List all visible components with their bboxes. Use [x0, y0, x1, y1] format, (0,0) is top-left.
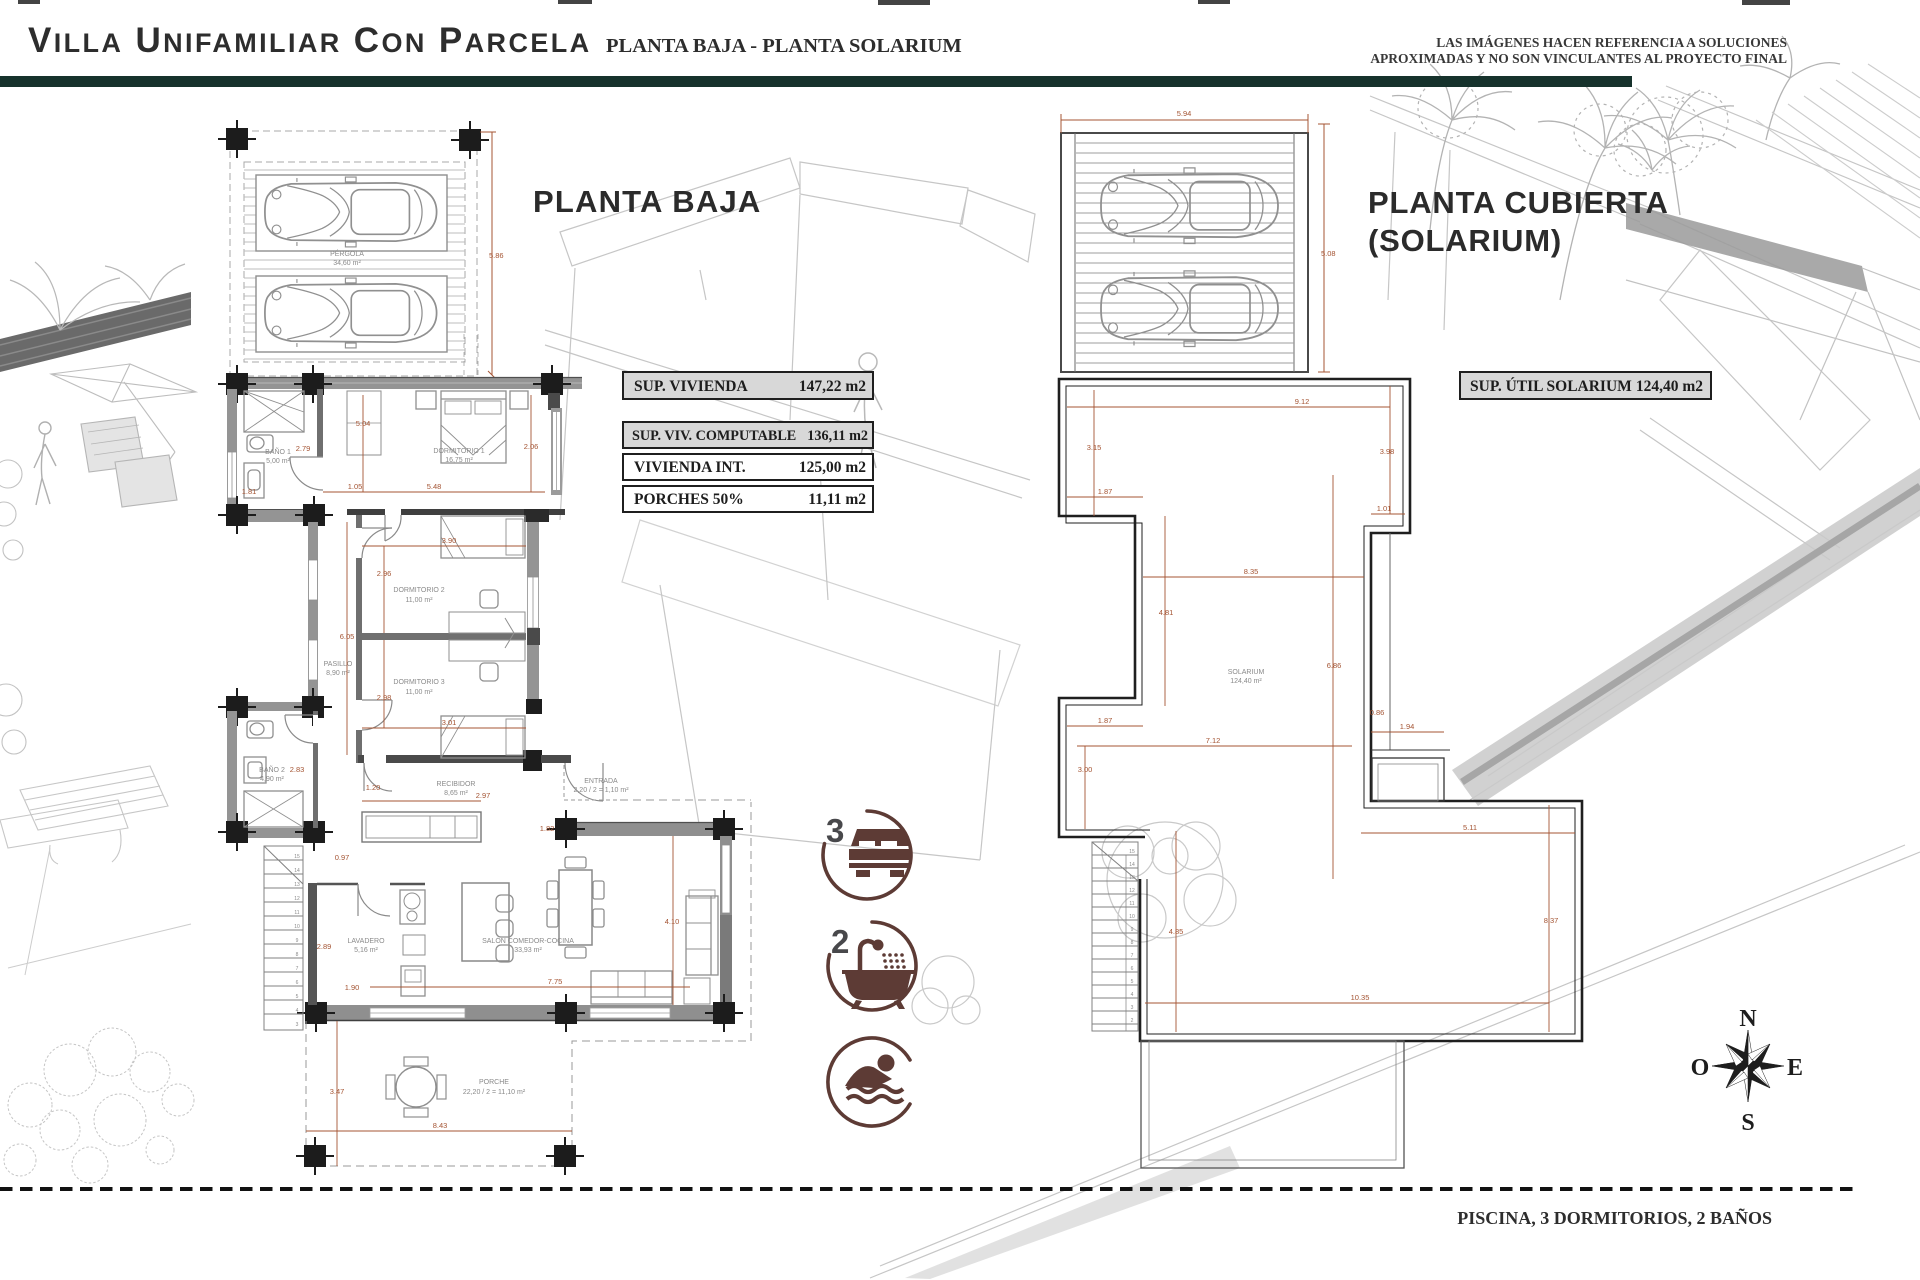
svg-text:8,65 m²: 8,65 m²: [444, 790, 468, 797]
svg-text:2,20 / 2 = 1,10 m²: 2,20 / 2 = 1,10 m²: [573, 787, 629, 794]
svg-text:5.48: 5.48: [427, 482, 442, 491]
svg-text:4,90 m²: 4,90 m²: [260, 776, 284, 783]
svg-text:2.06: 2.06: [524, 442, 539, 451]
svg-text:34,60 m²: 34,60 m²: [333, 260, 361, 267]
svg-text:15: 15: [1129, 849, 1135, 855]
svg-text:1.05: 1.05: [348, 482, 363, 491]
svg-text:6.05: 6.05: [340, 632, 355, 641]
svg-text:5.04: 5.04: [356, 419, 371, 428]
svg-text:SOLARIUM: SOLARIUM: [1228, 669, 1265, 676]
svg-text:4.10: 4.10: [665, 917, 680, 926]
svg-text:9: 9: [1131, 927, 1134, 933]
svg-text:N: N: [1739, 1006, 1757, 1032]
svg-text:3.47: 3.47: [330, 1087, 345, 1096]
svg-text:4: 4: [296, 1008, 299, 1014]
svg-text:2.98: 2.98: [377, 693, 392, 702]
svg-text:8: 8: [296, 952, 299, 958]
svg-text:10.35: 10.35: [1351, 993, 1370, 1002]
svg-text:11,00 m²: 11,00 m²: [405, 597, 433, 604]
svg-text:13: 13: [294, 882, 300, 888]
svg-text:136,11 m2: 136,11 m2: [807, 428, 868, 444]
svg-text:9: 9: [296, 938, 299, 944]
svg-text:E: E: [1787, 1055, 1803, 1081]
svg-text:7.75: 7.75: [548, 977, 563, 986]
svg-text:15: 15: [294, 854, 300, 860]
svg-text:14: 14: [294, 868, 300, 874]
svg-text:5: 5: [296, 994, 299, 1000]
svg-text:PISCINA, 3 DORMITORIOS, 2 BAÑO: PISCINA, 3 DORMITORIOS, 2 BAÑOS: [1457, 1207, 1772, 1228]
svg-text:7: 7: [1131, 953, 1134, 959]
svg-text:LAVADERO: LAVADERO: [347, 938, 385, 945]
svg-text:5.86: 5.86: [489, 251, 504, 260]
svg-text:4.85: 4.85: [1169, 927, 1184, 936]
svg-text:2: 2: [1131, 1018, 1134, 1024]
svg-text:VIVIENDA INT.: VIVIENDA INT.: [634, 459, 746, 476]
svg-text:124,40 m2: 124,40 m2: [1636, 378, 1703, 395]
svg-text:5,16 m²: 5,16 m²: [354, 947, 378, 954]
svg-text:11: 11: [294, 910, 299, 916]
svg-text:7: 7: [296, 966, 299, 972]
svg-text:5.08: 5.08: [1321, 249, 1336, 258]
svg-text:147,22 m2: 147,22 m2: [799, 378, 866, 395]
svg-text:0.97: 0.97: [335, 853, 350, 862]
svg-text:2.79: 2.79: [296, 444, 311, 453]
svg-text:BAÑO 2: BAÑO 2: [259, 765, 285, 774]
svg-text:O: O: [1691, 1055, 1710, 1081]
svg-text:8.37: 8.37: [1544, 916, 1559, 925]
svg-text:2.83: 2.83: [290, 765, 305, 774]
svg-text:DORMITORIO 1: DORMITORIO 1: [433, 448, 484, 455]
svg-text:6: 6: [296, 980, 299, 986]
svg-text:PLANTA BAJA - PLANTA SOLARIUM: PLANTA BAJA - PLANTA SOLARIUM: [606, 35, 962, 57]
svg-text:3: 3: [1131, 1005, 1134, 1011]
svg-text:125,00 m2: 125,00 m2: [799, 459, 866, 476]
svg-text:4.81: 4.81: [1159, 608, 1174, 617]
svg-text:2: 2: [831, 923, 849, 960]
svg-text:SUP. VIVIENDA: SUP. VIVIENDA: [634, 378, 749, 395]
svg-text:16,75 m²: 16,75 m²: [445, 457, 473, 464]
svg-text:DORMITORIO 2: DORMITORIO 2: [393, 587, 444, 594]
svg-text:6: 6: [1131, 966, 1134, 972]
svg-text:11,00 m²: 11,00 m²: [405, 689, 433, 696]
svg-text:PÉRGOLA: PÉRGOLA: [330, 249, 364, 258]
svg-text:8.43: 8.43: [433, 1121, 448, 1130]
svg-text:3.15: 3.15: [1087, 443, 1102, 452]
svg-text:124,40 m²: 124,40 m²: [1230, 678, 1262, 685]
svg-text:PORCHE: PORCHE: [479, 1079, 509, 1086]
svg-text:1.90: 1.90: [345, 983, 360, 992]
svg-text:6.86: 6.86: [1327, 661, 1342, 670]
svg-text:13: 13: [1129, 875, 1135, 881]
svg-text:SUP. ÚTIL SOLARIUM: SUP. ÚTIL SOLARIUM: [1470, 378, 1632, 395]
svg-text:SALÓN COMEDOR-COCINA: SALÓN COMEDOR-COCINA: [482, 936, 574, 945]
svg-text:10: 10: [1129, 914, 1135, 920]
svg-text:PASILLO: PASILLO: [324, 661, 353, 668]
svg-text:5,00 m²: 5,00 m²: [266, 458, 290, 465]
svg-text:DORMITORIO 3: DORMITORIO 3: [393, 679, 444, 686]
svg-text:11,11 m2: 11,11 m2: [808, 491, 866, 508]
svg-text:APROXIMADAS Y NO SON VINCULANT: APROXIMADAS Y NO SON VINCULANTES AL PROY…: [1370, 51, 1787, 66]
svg-text:1.01: 1.01: [1377, 504, 1392, 513]
svg-text:1.20: 1.20: [366, 783, 381, 792]
svg-text:11: 11: [1129, 901, 1134, 907]
svg-text:PLANTA BAJA: PLANTA BAJA: [533, 184, 761, 219]
svg-text:RECIBIDOR: RECIBIDOR: [437, 781, 476, 788]
svg-text:3.98: 3.98: [1380, 447, 1395, 456]
svg-text:0.86: 0.86: [1370, 708, 1385, 717]
svg-text:8: 8: [1131, 940, 1134, 946]
svg-text:1.87: 1.87: [1098, 716, 1113, 725]
svg-text:5.94: 5.94: [1177, 109, 1192, 118]
svg-text:S: S: [1741, 1110, 1754, 1136]
svg-text:33,93 m²: 33,93 m²: [514, 947, 542, 954]
svg-text:1.94: 1.94: [1400, 722, 1415, 731]
svg-text:(SOLARIUM): (SOLARIUM): [1368, 223, 1562, 258]
svg-text:9.12: 9.12: [1295, 397, 1310, 406]
svg-text:2.89: 2.89: [317, 942, 332, 951]
svg-text:2.96: 2.96: [377, 569, 392, 578]
svg-text:5: 5: [1131, 979, 1134, 985]
svg-text:3: 3: [826, 812, 844, 849]
svg-text:7.12: 7.12: [1206, 736, 1221, 745]
svg-text:2.97: 2.97: [476, 791, 491, 800]
svg-text:PLANTA CUBIERTA: PLANTA CUBIERTA: [1368, 185, 1669, 220]
svg-text:BAÑO 1: BAÑO 1: [265, 447, 291, 456]
svg-text:22,20 / 2 = 11,10 m²: 22,20 / 2 = 11,10 m²: [463, 1089, 526, 1096]
svg-text:ENTRADA: ENTRADA: [584, 778, 618, 785]
svg-text:3.00: 3.00: [1078, 765, 1093, 774]
svg-text:PORCHES 50%: PORCHES 50%: [634, 491, 744, 508]
svg-text:5.11: 5.11: [1463, 823, 1477, 832]
svg-text:1.81: 1.81: [242, 487, 257, 496]
svg-text:SUP. VIV. COMPUTABLE: SUP. VIV. COMPUTABLE: [632, 428, 796, 444]
svg-text:8.35: 8.35: [1244, 567, 1259, 576]
svg-text:1.87: 1.87: [1098, 487, 1113, 496]
svg-text:12: 12: [294, 896, 300, 902]
svg-text:3.01: 3.01: [442, 718, 457, 727]
svg-text:12: 12: [1129, 888, 1135, 894]
svg-text:14: 14: [1129, 862, 1135, 868]
svg-text:LAS IMÁGENES HACEN REFERENCIA: LAS IMÁGENES HACEN REFERENCIA A SOLUCION…: [1436, 35, 1787, 50]
svg-text:4: 4: [1131, 992, 1134, 998]
svg-text:10: 10: [294, 924, 300, 930]
svg-text:3: 3: [296, 1022, 299, 1028]
svg-text:1.82: 1.82: [540, 824, 555, 833]
svg-text:3.90: 3.90: [442, 536, 457, 545]
